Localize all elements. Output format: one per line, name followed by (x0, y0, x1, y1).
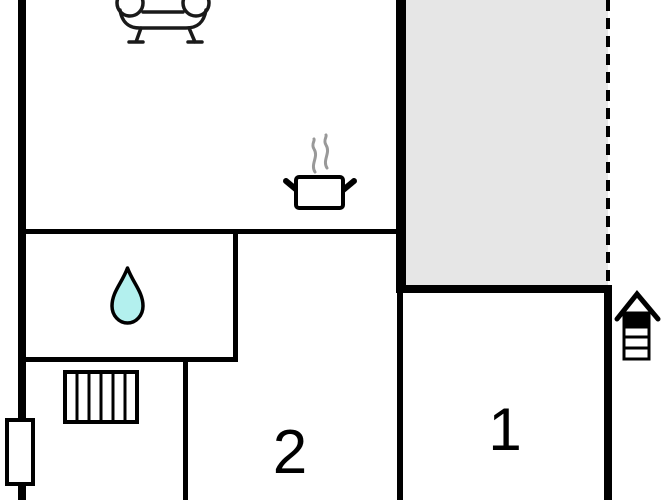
pot-body (296, 177, 343, 208)
wall-room1-room2-divider (397, 293, 403, 500)
entrance-black-band (624, 313, 649, 327)
terrace-area (406, 0, 608, 285)
entrance-house-icon (617, 294, 658, 359)
stairs-icon (65, 372, 137, 422)
wall-bathroom-bottom (18, 357, 238, 362)
sofa-leg-left (129, 28, 143, 42)
wall-terrace-bottom (396, 285, 612, 293)
floorplan-canvas: 2 1 (0, 0, 664, 500)
window-marker (7, 420, 33, 484)
floorplan-drawing (0, 0, 664, 500)
wall-living-bottom (18, 229, 398, 234)
wall-hall-right (183, 357, 188, 500)
cooking-pot-icon (286, 135, 354, 208)
steam-line-right (325, 135, 328, 168)
room-1-label: 1 (473, 400, 537, 460)
wall-room1-right (604, 293, 612, 500)
steam-icon (313, 135, 328, 172)
wall-living-terrace (396, 0, 406, 293)
steam-line-left (313, 139, 316, 172)
room-2-label: 2 (258, 422, 322, 484)
sofa-leg-right (188, 28, 202, 42)
water-drop-icon (112, 268, 143, 323)
wall-bathroom-right (233, 229, 238, 362)
sofa-icon (117, 0, 209, 42)
